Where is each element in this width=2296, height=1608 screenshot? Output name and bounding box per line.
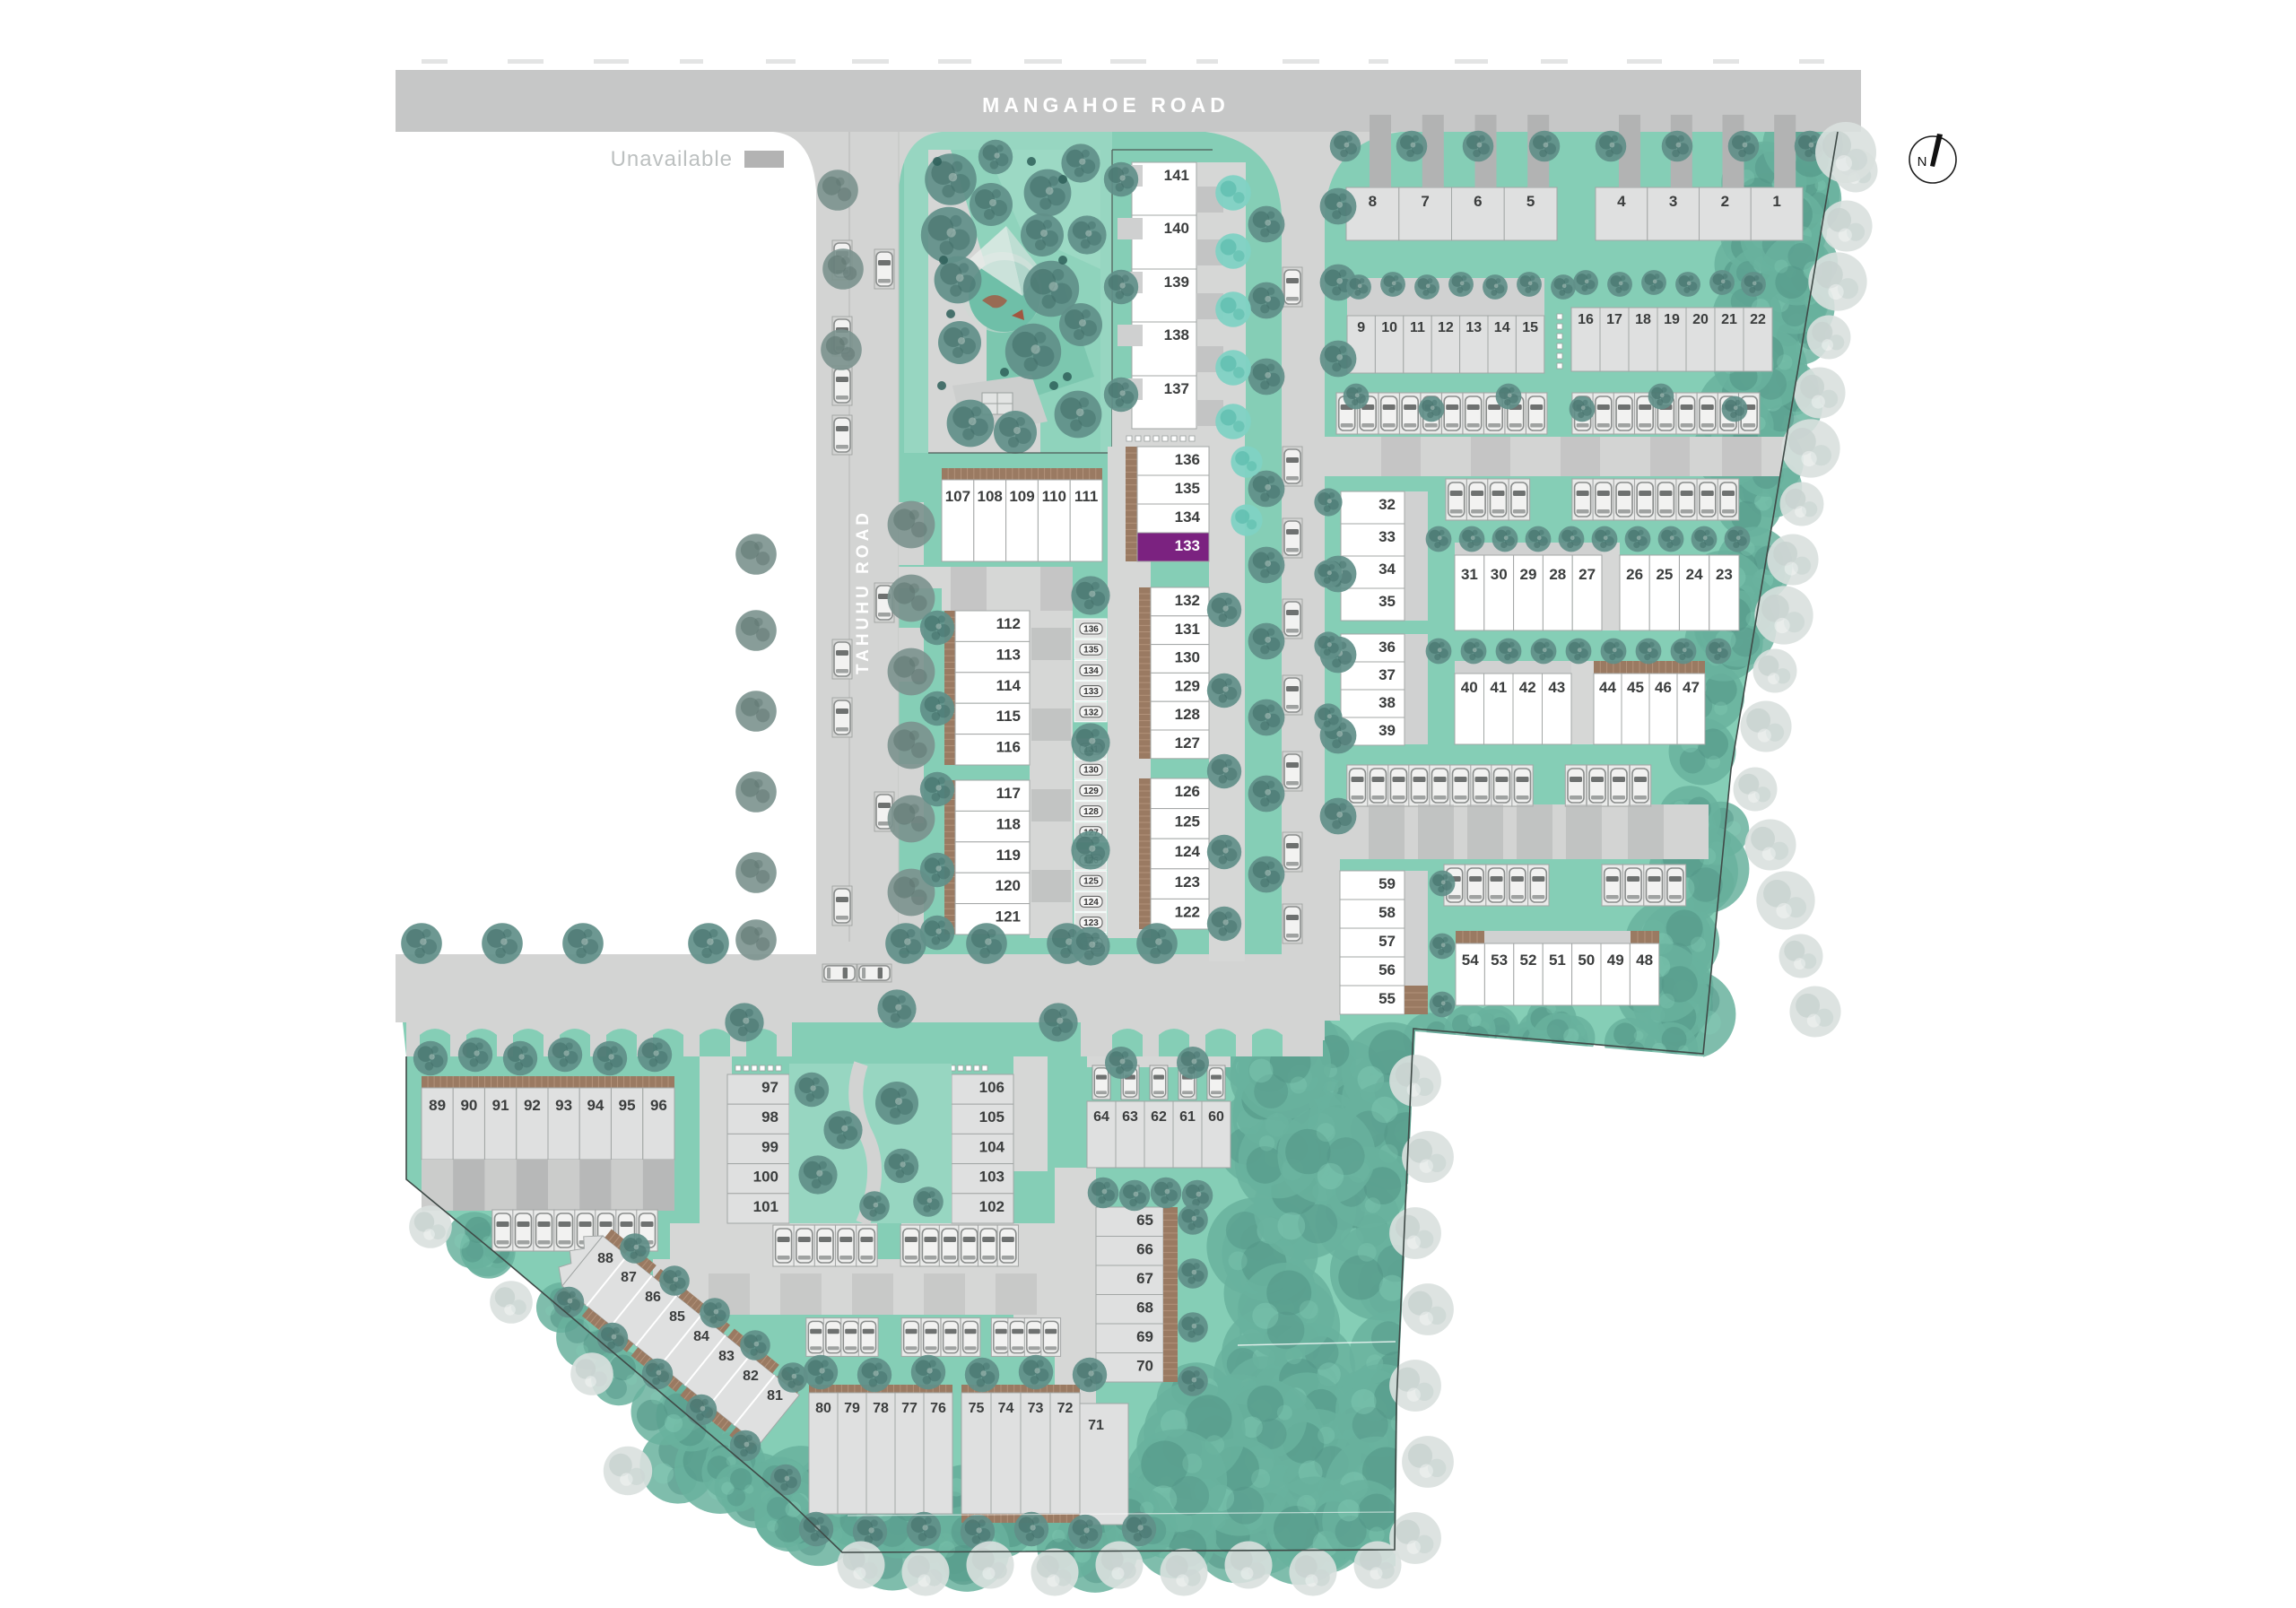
svg-text:58: 58 — [1378, 904, 1396, 921]
svg-text:11: 11 — [1410, 320, 1425, 335]
svg-text:5: 5 — [1526, 193, 1535, 210]
svg-text:133: 133 — [1083, 687, 1099, 697]
svg-text:141: 141 — [1164, 167, 1189, 184]
svg-text:37: 37 — [1378, 666, 1396, 683]
svg-text:51: 51 — [1549, 952, 1566, 969]
svg-text:110: 110 — [1042, 488, 1066, 505]
svg-text:22: 22 — [1750, 312, 1766, 327]
svg-text:129: 129 — [1175, 677, 1200, 694]
svg-text:125: 125 — [1083, 877, 1099, 887]
svg-text:4: 4 — [1617, 193, 1626, 210]
svg-text:121: 121 — [996, 908, 1021, 926]
svg-text:62: 62 — [1151, 1109, 1167, 1125]
svg-text:9: 9 — [1357, 320, 1365, 335]
svg-text:130: 130 — [1175, 649, 1200, 666]
svg-text:135: 135 — [1175, 480, 1200, 497]
svg-text:91: 91 — [492, 1097, 509, 1114]
svg-text:8: 8 — [1369, 193, 1377, 210]
svg-text:44: 44 — [1599, 679, 1616, 696]
svg-text:6: 6 — [1474, 193, 1482, 210]
svg-text:13: 13 — [1465, 320, 1482, 335]
svg-text:132: 132 — [1175, 592, 1200, 609]
svg-text:128: 128 — [1083, 807, 1099, 817]
svg-text:139: 139 — [1164, 274, 1189, 291]
svg-text:84: 84 — [693, 1329, 709, 1344]
svg-text:114: 114 — [996, 677, 1022, 694]
svg-text:38: 38 — [1378, 694, 1396, 711]
svg-text:102: 102 — [979, 1198, 1004, 1215]
svg-text:1: 1 — [1772, 193, 1780, 210]
svg-text:80: 80 — [815, 1401, 831, 1416]
svg-text:125: 125 — [1175, 813, 1200, 830]
svg-text:53: 53 — [1491, 952, 1508, 969]
svg-text:34: 34 — [1378, 561, 1396, 578]
svg-text:46: 46 — [1655, 679, 1672, 696]
svg-text:54: 54 — [1462, 952, 1479, 969]
svg-text:128: 128 — [1175, 706, 1200, 723]
svg-text:49: 49 — [1607, 952, 1624, 969]
svg-text:73: 73 — [1028, 1401, 1044, 1416]
svg-text:93: 93 — [555, 1097, 572, 1114]
svg-text:10: 10 — [1381, 320, 1397, 335]
svg-text:113: 113 — [996, 646, 1021, 663]
svg-text:74: 74 — [998, 1401, 1014, 1416]
svg-text:42: 42 — [1519, 679, 1536, 696]
svg-text:136: 136 — [1175, 451, 1200, 468]
svg-text:94: 94 — [587, 1097, 604, 1114]
svg-text:35: 35 — [1378, 593, 1396, 610]
svg-text:120: 120 — [996, 877, 1021, 894]
svg-text:24: 24 — [1686, 566, 1703, 583]
svg-text:138: 138 — [1164, 326, 1189, 343]
svg-text:32: 32 — [1378, 496, 1396, 513]
svg-text:131: 131 — [1175, 621, 1200, 638]
svg-text:60: 60 — [1208, 1109, 1224, 1125]
svg-text:123: 123 — [1175, 874, 1200, 891]
svg-text:78: 78 — [873, 1401, 889, 1416]
svg-text:87: 87 — [621, 1270, 637, 1285]
svg-text:115: 115 — [996, 708, 1021, 725]
svg-text:107: 107 — [945, 488, 970, 505]
svg-text:36: 36 — [1378, 639, 1396, 656]
svg-text:59: 59 — [1378, 875, 1396, 892]
svg-text:40: 40 — [1461, 679, 1478, 696]
svg-text:39: 39 — [1378, 722, 1396, 739]
svg-text:15: 15 — [1522, 320, 1538, 335]
svg-text:16: 16 — [1578, 312, 1594, 327]
svg-text:2: 2 — [1721, 193, 1729, 210]
svg-text:70: 70 — [1136, 1358, 1153, 1375]
svg-text:18: 18 — [1635, 312, 1651, 327]
svg-text:41: 41 — [1490, 679, 1507, 696]
svg-text:88: 88 — [597, 1251, 613, 1266]
svg-text:20: 20 — [1692, 312, 1709, 327]
svg-text:101: 101 — [753, 1198, 778, 1215]
svg-text:95: 95 — [619, 1097, 636, 1114]
svg-text:29: 29 — [1520, 566, 1537, 583]
svg-text:89: 89 — [429, 1097, 446, 1114]
svg-text:136: 136 — [1083, 625, 1099, 635]
svg-text:111: 111 — [1074, 488, 1099, 505]
svg-text:48: 48 — [1636, 952, 1653, 969]
svg-text:64: 64 — [1093, 1109, 1109, 1125]
svg-text:72: 72 — [1057, 1401, 1074, 1416]
svg-text:133: 133 — [1175, 537, 1200, 554]
svg-text:134: 134 — [1083, 666, 1099, 676]
svg-text:25: 25 — [1656, 566, 1673, 583]
svg-text:57: 57 — [1378, 933, 1396, 950]
svg-text:27: 27 — [1578, 566, 1596, 583]
svg-text:132: 132 — [1083, 708, 1099, 717]
svg-text:63: 63 — [1122, 1109, 1138, 1125]
svg-text:112: 112 — [996, 615, 1021, 632]
svg-text:90: 90 — [460, 1097, 477, 1114]
svg-text:129: 129 — [1083, 787, 1099, 796]
svg-text:105: 105 — [979, 1108, 1004, 1126]
svg-text:82: 82 — [743, 1369, 759, 1384]
svg-text:118: 118 — [996, 815, 1021, 832]
svg-text:137: 137 — [1164, 380, 1189, 397]
svg-text:28: 28 — [1549, 566, 1566, 583]
svg-text:130: 130 — [1083, 766, 1099, 776]
svg-text:43: 43 — [1548, 679, 1565, 696]
svg-text:100: 100 — [753, 1169, 778, 1186]
svg-text:108: 108 — [978, 488, 1003, 505]
svg-text:106: 106 — [979, 1079, 1004, 1096]
svg-text:26: 26 — [1626, 566, 1643, 583]
svg-text:31: 31 — [1461, 566, 1478, 583]
svg-text:83: 83 — [718, 1349, 735, 1364]
svg-text:92: 92 — [524, 1097, 541, 1114]
svg-text:MANGAHOE ROAD: MANGAHOE ROAD — [982, 93, 1230, 117]
svg-text:23: 23 — [1716, 566, 1733, 583]
svg-text:17: 17 — [1606, 312, 1622, 327]
svg-text:98: 98 — [761, 1108, 778, 1126]
svg-text:7: 7 — [1421, 193, 1429, 210]
svg-text:33: 33 — [1378, 528, 1396, 545]
svg-text:126: 126 — [1175, 783, 1200, 800]
svg-text:77: 77 — [901, 1401, 918, 1416]
svg-text:96: 96 — [650, 1097, 667, 1114]
svg-text:55: 55 — [1378, 990, 1396, 1007]
svg-text:66: 66 — [1136, 1241, 1153, 1258]
svg-text:3: 3 — [1669, 193, 1677, 210]
svg-text:124: 124 — [1175, 843, 1201, 860]
svg-text:122: 122 — [1175, 903, 1200, 920]
svg-text:68: 68 — [1136, 1299, 1153, 1317]
svg-text:124: 124 — [1083, 898, 1099, 908]
svg-text:61: 61 — [1179, 1109, 1196, 1125]
svg-text:97: 97 — [761, 1079, 778, 1096]
svg-text:104: 104 — [979, 1138, 1005, 1155]
svg-text:71: 71 — [1088, 1418, 1104, 1433]
svg-text:103: 103 — [979, 1169, 1004, 1186]
svg-text:19: 19 — [1664, 312, 1680, 327]
svg-text:65: 65 — [1136, 1212, 1153, 1229]
svg-text:N: N — [1918, 154, 1927, 169]
svg-text:75: 75 — [969, 1401, 985, 1416]
svg-text:67: 67 — [1136, 1270, 1153, 1287]
svg-text:140: 140 — [1164, 220, 1189, 237]
svg-text:50: 50 — [1578, 952, 1595, 969]
svg-text:47: 47 — [1683, 679, 1700, 696]
svg-text:52: 52 — [1520, 952, 1537, 969]
svg-text:12: 12 — [1438, 320, 1454, 335]
svg-text:135: 135 — [1083, 646, 1099, 656]
svg-text:14: 14 — [1494, 320, 1510, 335]
svg-text:85: 85 — [669, 1309, 685, 1325]
svg-text:76: 76 — [930, 1401, 946, 1416]
svg-text:134: 134 — [1175, 508, 1201, 526]
svg-text:Unavailable: Unavailable — [611, 147, 733, 171]
svg-text:116: 116 — [996, 739, 1021, 756]
svg-text:81: 81 — [767, 1388, 783, 1404]
svg-text:99: 99 — [761, 1138, 778, 1155]
svg-text:69: 69 — [1136, 1328, 1153, 1345]
svg-text:109: 109 — [1009, 488, 1034, 505]
svg-text:TAHUHU ROAD: TAHUHU ROAD — [854, 509, 873, 674]
svg-text:79: 79 — [844, 1401, 860, 1416]
svg-text:30: 30 — [1491, 566, 1508, 583]
svg-text:119: 119 — [996, 847, 1021, 864]
svg-text:117: 117 — [996, 785, 1021, 802]
svg-text:21: 21 — [1721, 312, 1737, 327]
svg-text:56: 56 — [1378, 961, 1396, 978]
svg-text:86: 86 — [645, 1290, 661, 1305]
svg-text:45: 45 — [1627, 679, 1644, 696]
svg-text:127: 127 — [1175, 734, 1200, 752]
